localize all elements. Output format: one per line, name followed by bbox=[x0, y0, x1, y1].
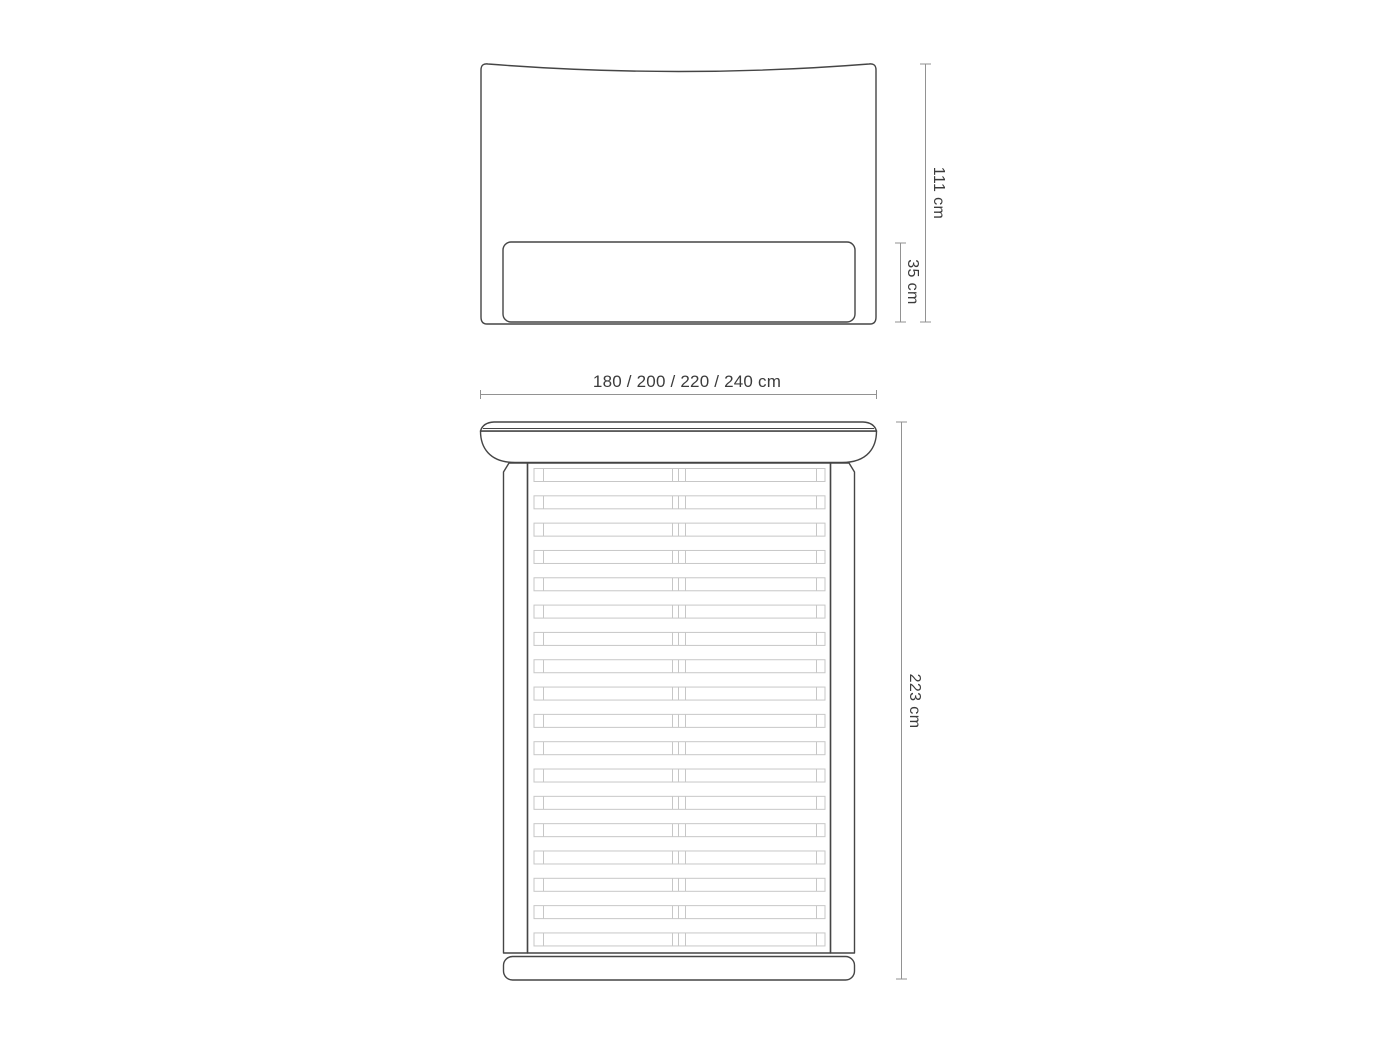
slat-row bbox=[534, 824, 825, 837]
dimension-headboard-height: 111 cm bbox=[920, 64, 947, 322]
slat-row bbox=[534, 878, 825, 891]
headboard-front-view bbox=[481, 64, 876, 324]
bed-technical-drawing: 35 cm 111 cm 180 / 200 / 220 / 240 cm bbox=[0, 0, 1395, 1047]
slat-row bbox=[534, 660, 825, 673]
slat-row bbox=[534, 769, 825, 782]
slat-row bbox=[534, 742, 825, 755]
slat-row bbox=[534, 687, 825, 700]
slat-row bbox=[534, 632, 825, 645]
slat-row bbox=[534, 796, 825, 809]
side-rail-right bbox=[831, 463, 855, 953]
slat-row bbox=[534, 469, 825, 482]
footboard bbox=[504, 957, 855, 981]
slat-row bbox=[534, 605, 825, 618]
dimension-bed-width: 180 / 200 / 220 / 240 cm bbox=[480, 372, 877, 399]
dimension-label-length: 223 cm bbox=[906, 674, 923, 729]
dimension-bed-length: 223 cm bbox=[896, 422, 923, 979]
slats bbox=[534, 469, 825, 946]
slat-row bbox=[534, 906, 825, 919]
slat-row bbox=[534, 933, 825, 946]
slat-row bbox=[534, 851, 825, 864]
side-rail-left bbox=[504, 463, 528, 953]
bed-top-view bbox=[481, 422, 877, 980]
headboard-lower-panel bbox=[503, 242, 855, 322]
dimension-label-headboard-height: 111 cm bbox=[930, 167, 947, 220]
slat-row bbox=[534, 714, 825, 727]
dimension-label-width: 180 / 200 / 220 / 240 cm bbox=[593, 372, 781, 391]
slat-row bbox=[534, 550, 825, 563]
slat-row bbox=[534, 496, 825, 509]
headboard-top-body bbox=[481, 431, 877, 463]
dimension-label-lower-panel: 35 cm bbox=[904, 259, 921, 305]
slat-row bbox=[534, 523, 825, 536]
dimension-lower-panel-height: 35 cm bbox=[895, 243, 921, 322]
headboard-top-cap bbox=[481, 422, 877, 431]
slat-row bbox=[534, 578, 825, 591]
technical-drawing-page: 35 cm 111 cm 180 / 200 / 220 / 240 cm bbox=[0, 0, 1395, 1047]
